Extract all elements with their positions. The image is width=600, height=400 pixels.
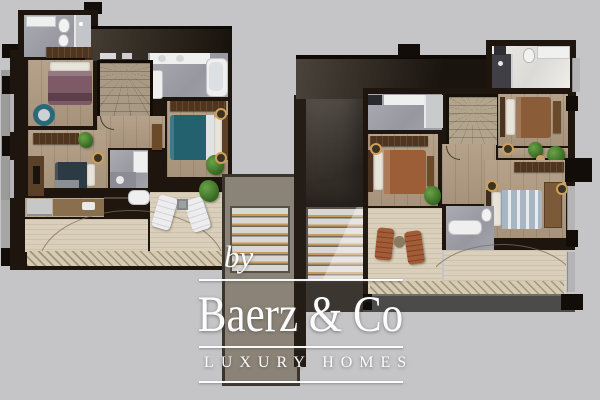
bed-teal [170, 115, 206, 160]
dresser [46, 47, 92, 58]
vanity-counter [26, 16, 56, 27]
bed-blue [502, 190, 542, 229]
side-table [177, 199, 188, 210]
headboard [500, 97, 505, 137]
bed-pillows [87, 164, 95, 186]
sink [158, 55, 166, 62]
window [572, 58, 580, 92]
kitchen-sink [82, 202, 95, 210]
decor-ring [92, 152, 104, 164]
watermark-tagline: LUXURY HOMES [197, 354, 404, 372]
left-plan [0, 0, 240, 280]
shower-head [498, 61, 503, 66]
wall-pier [566, 230, 578, 247]
shower [424, 95, 443, 128]
wall-pier [566, 96, 578, 111]
headboard [368, 150, 373, 192]
decor-ring [370, 143, 382, 155]
watermark-rule [199, 279, 403, 281]
potted-plant [199, 180, 219, 202]
winder-staircase [446, 94, 500, 148]
dresser [514, 162, 564, 172]
window [567, 252, 575, 292]
bed-pillows [506, 99, 515, 135]
window [9, 94, 14, 132]
chimney-block [398, 44, 420, 57]
washbasin-dark [368, 95, 382, 105]
watermark: by Baerz & Co LUXURY HOMES [197, 240, 404, 390]
window [567, 186, 575, 230]
window [9, 160, 14, 198]
decor-ring [502, 143, 514, 155]
closet-doors [100, 53, 116, 59]
outdoor-sofa [128, 190, 150, 205]
toilet [481, 208, 492, 222]
bed-brown [516, 97, 551, 138]
vanity-counter [133, 151, 148, 173]
decor-ring [486, 180, 498, 192]
console-table [152, 124, 162, 150]
shower-head [116, 176, 124, 184]
bed-sheet-fold [206, 115, 214, 160]
shower-head [79, 22, 83, 26]
bathtub [448, 220, 482, 235]
potted-plant [78, 132, 93, 148]
bed-bench [427, 156, 434, 186]
bed-pillows [374, 152, 383, 190]
vanity-counter [537, 46, 570, 59]
toilet [523, 48, 535, 63]
tv-panel [33, 166, 40, 184]
closet-doors [122, 53, 132, 59]
toilet [58, 18, 70, 33]
watermark-rule [199, 381, 403, 383]
watermark-by: by [224, 241, 253, 272]
bed-throw [55, 180, 79, 188]
potted-plant [424, 186, 441, 205]
watermark-rule [199, 346, 403, 348]
bed-pillows [50, 62, 90, 71]
bidet [58, 34, 69, 47]
dresser [33, 133, 79, 144]
winder-staircase [97, 60, 153, 120]
wall-pier [561, 294, 583, 310]
wall-pier [565, 158, 592, 182]
floorplan-image: by Baerz & Co LUXURY HOMES [0, 0, 600, 400]
watermark-brand: Baerz & Co [197, 286, 404, 345]
bed-bench [553, 101, 561, 133]
washbasin-dark [494, 46, 506, 55]
bed-rust [384, 150, 426, 194]
sink [176, 55, 184, 62]
armchair-cushion [38, 109, 50, 121]
shower [492, 54, 513, 88]
bed-throw [48, 93, 92, 101]
